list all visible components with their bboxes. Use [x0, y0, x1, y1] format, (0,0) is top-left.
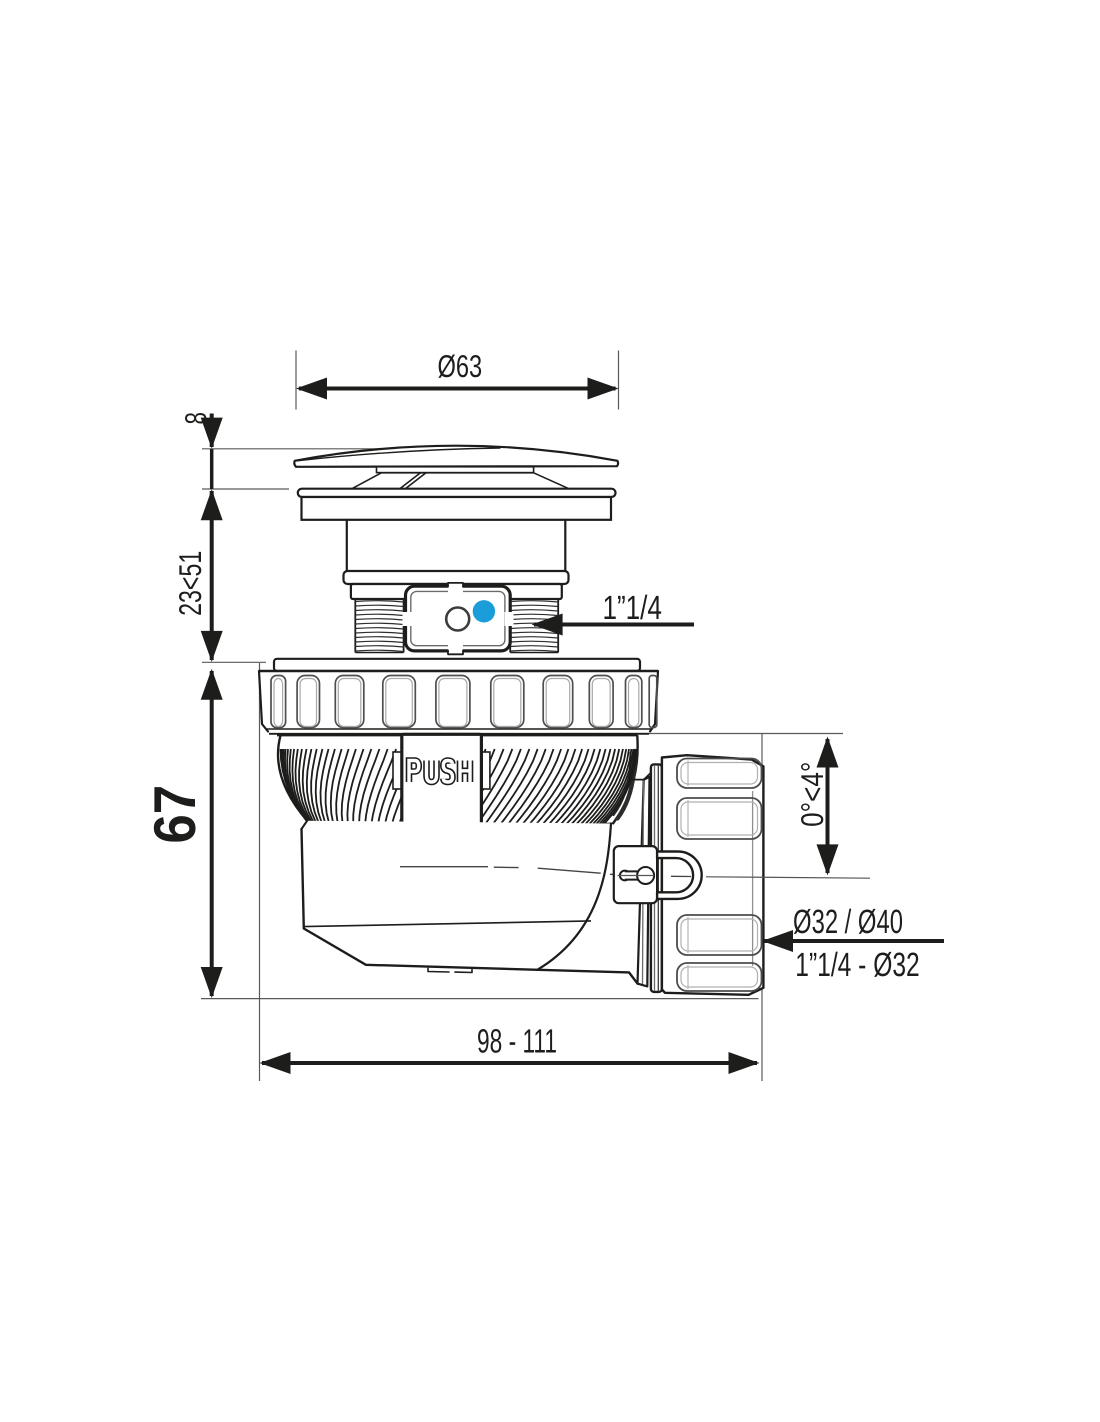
svg-text:1”1/4 - Ø32: 1”1/4 - Ø32	[795, 946, 919, 984]
svg-text:23<51: 23<51	[172, 551, 208, 616]
svg-text:Ø63: Ø63	[437, 348, 482, 384]
svg-text:98 - 111: 98 - 111	[477, 1022, 557, 1060]
svg-text:8: 8	[180, 412, 213, 425]
svg-text:Ø32 / Ø40: Ø32 / Ø40	[793, 903, 903, 941]
svg-text:67: 67	[142, 785, 208, 844]
svg-text:1”1/4: 1”1/4	[602, 589, 661, 627]
svg-text:0°<4°: 0°<4°	[794, 762, 830, 827]
